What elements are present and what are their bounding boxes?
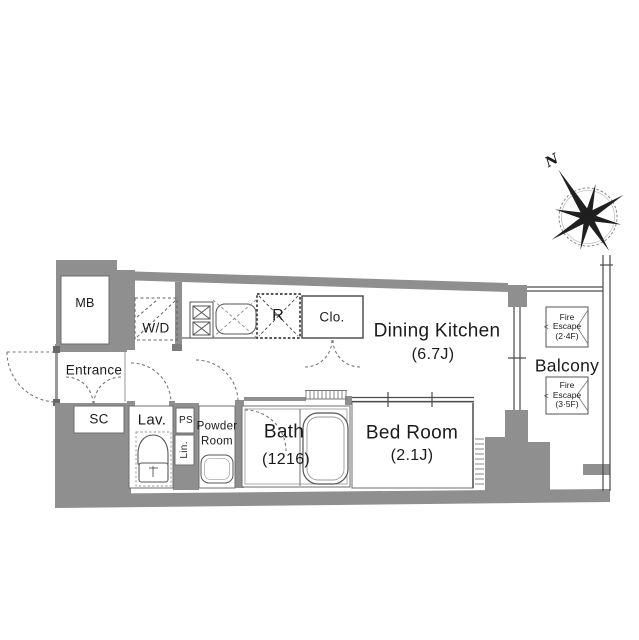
door-jamb [172, 344, 182, 351]
bath-top-hatch [305, 391, 347, 400]
lin-label: Lin. [180, 441, 190, 458]
bedroom-outline [352, 402, 473, 488]
refrigerator-label: R [272, 308, 284, 324]
powder-door-arc [196, 360, 238, 402]
fire-escape-upper: < Fire Escape (2·4F) [546, 307, 588, 347]
washbasin-icon [201, 455, 233, 483]
balcony-label: Balcony [535, 357, 599, 375]
left-arrow-icon: < [544, 391, 549, 401]
step-wall-3 [528, 442, 550, 490]
balcony-corner-wall [508, 285, 527, 307]
wd-label: W/D [142, 321, 169, 335]
sc-door-arc [66, 377, 93, 404]
lav-label: Lav. [138, 413, 166, 428]
step-wall-1 [505, 410, 528, 437]
ps-label: PS [179, 416, 191, 426]
sc-label: SC [89, 412, 108, 426]
closet-label: Clo. [319, 310, 344, 324]
entrance-door-arc [7, 352, 57, 402]
fire-escape-upper-line3: (2·4F) [555, 332, 578, 342]
step-wall-2 [485, 437, 528, 494]
powder-room-label-line1: Powder [197, 421, 238, 433]
bathtub-icon [303, 413, 348, 484]
dining-kitchen-size-label: (6.7J) [412, 347, 455, 363]
powder-room-label-line2: Room [201, 436, 233, 448]
stove-icon [190, 302, 213, 338]
bedroom-size-label: (2.1J) [391, 448, 434, 464]
mb-label: MB [75, 297, 94, 310]
bedroom-label: Bed Room [366, 424, 458, 443]
left-outer-wall [55, 352, 58, 403]
top-wall [135, 272, 508, 293]
closet-door-arc [333, 340, 360, 367]
hall-door-arc [131, 363, 171, 403]
balcony-divider-stub [583, 464, 610, 475]
fire-escape-lower-line3: (3·5F) [555, 400, 578, 410]
left-arrow-icon: < [544, 322, 549, 332]
floorplan-canvas: MB W/D Entrance SC Lav. PS Lin. Powder R… [0, 0, 639, 640]
entrance-top-wall [55, 344, 127, 352]
bottom-wall [55, 489, 610, 508]
bath-size-label: (1216) [262, 452, 310, 468]
bedroom-right-hatch [475, 439, 484, 484]
bath-top-wall [244, 397, 306, 401]
compass-icon [522, 147, 639, 273]
entrance-label: Entrance [66, 363, 122, 377]
closet-door-arc [305, 340, 332, 367]
mb-box [61, 276, 109, 344]
sc-door-arc [94, 377, 121, 404]
wall-right-of-mb [117, 270, 135, 350]
dining-kitchen-label: Dining Kitchen [374, 322, 501, 341]
fire-escape-lower: < Fire Escape (3·5F) [546, 377, 588, 414]
bath-label: Bath [264, 423, 304, 442]
